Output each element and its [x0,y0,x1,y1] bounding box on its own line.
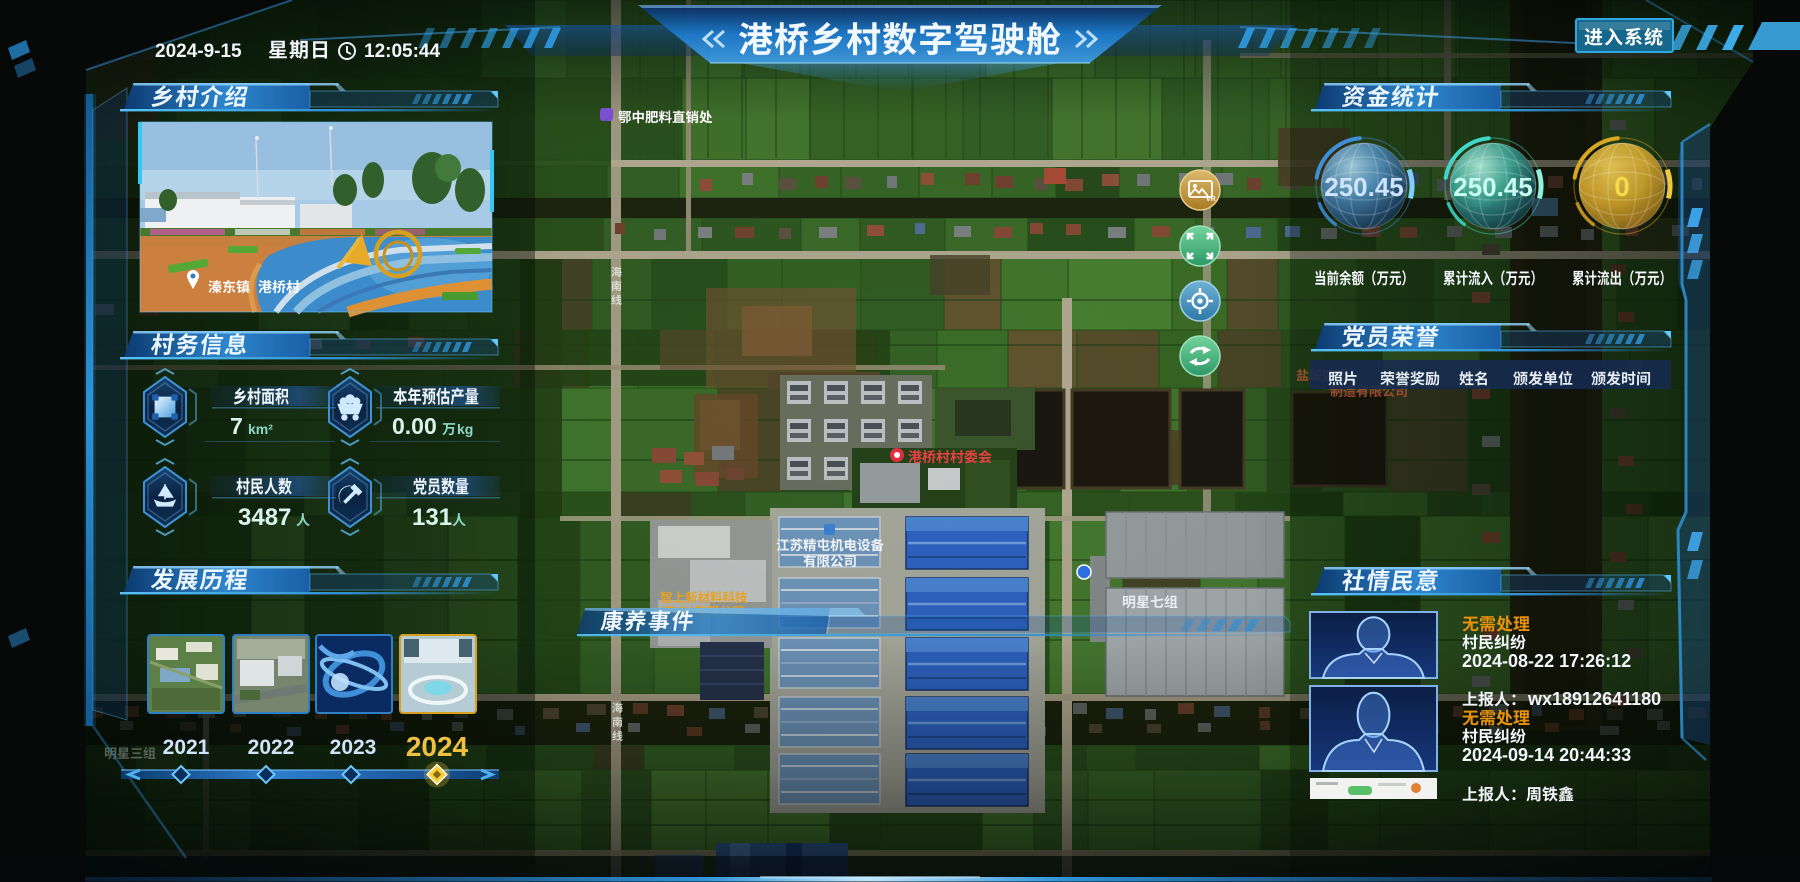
svg-text:VR: VR [1206,196,1216,203]
svg-text:250.45: 250.45 [1324,172,1404,202]
svg-text:2024-9-15: 2024-9-15 [155,41,242,62]
svg-text:131: 131 [412,504,452,531]
svg-text:2022: 2022 [248,736,295,759]
svg-text:2024-09-14 20:44:33: 2024-09-14 20:44:33 [1462,745,1631,765]
svg-text:2023: 2023 [330,736,377,759]
svg-text:250.45: 250.45 [1453,172,1533,202]
svg-text:3487: 3487 [238,504,291,531]
svg-text:2021: 2021 [163,736,210,759]
svg-text:7: 7 [230,413,243,439]
svg-text:12:05:44: 12:05:44 [364,41,440,62]
svg-text:wx18912641180: wx18912641180 [1527,689,1661,709]
svg-text:0.00: 0.00 [392,413,437,439]
svg-text:km²: km² [248,421,273,437]
svg-text:2024: 2024 [406,731,469,762]
svg-text:0: 0 [1614,171,1630,202]
svg-text:2024-08-22 17:26:12: 2024-08-22 17:26:12 [1462,651,1631,671]
svg-text:kg: kg [457,421,473,437]
